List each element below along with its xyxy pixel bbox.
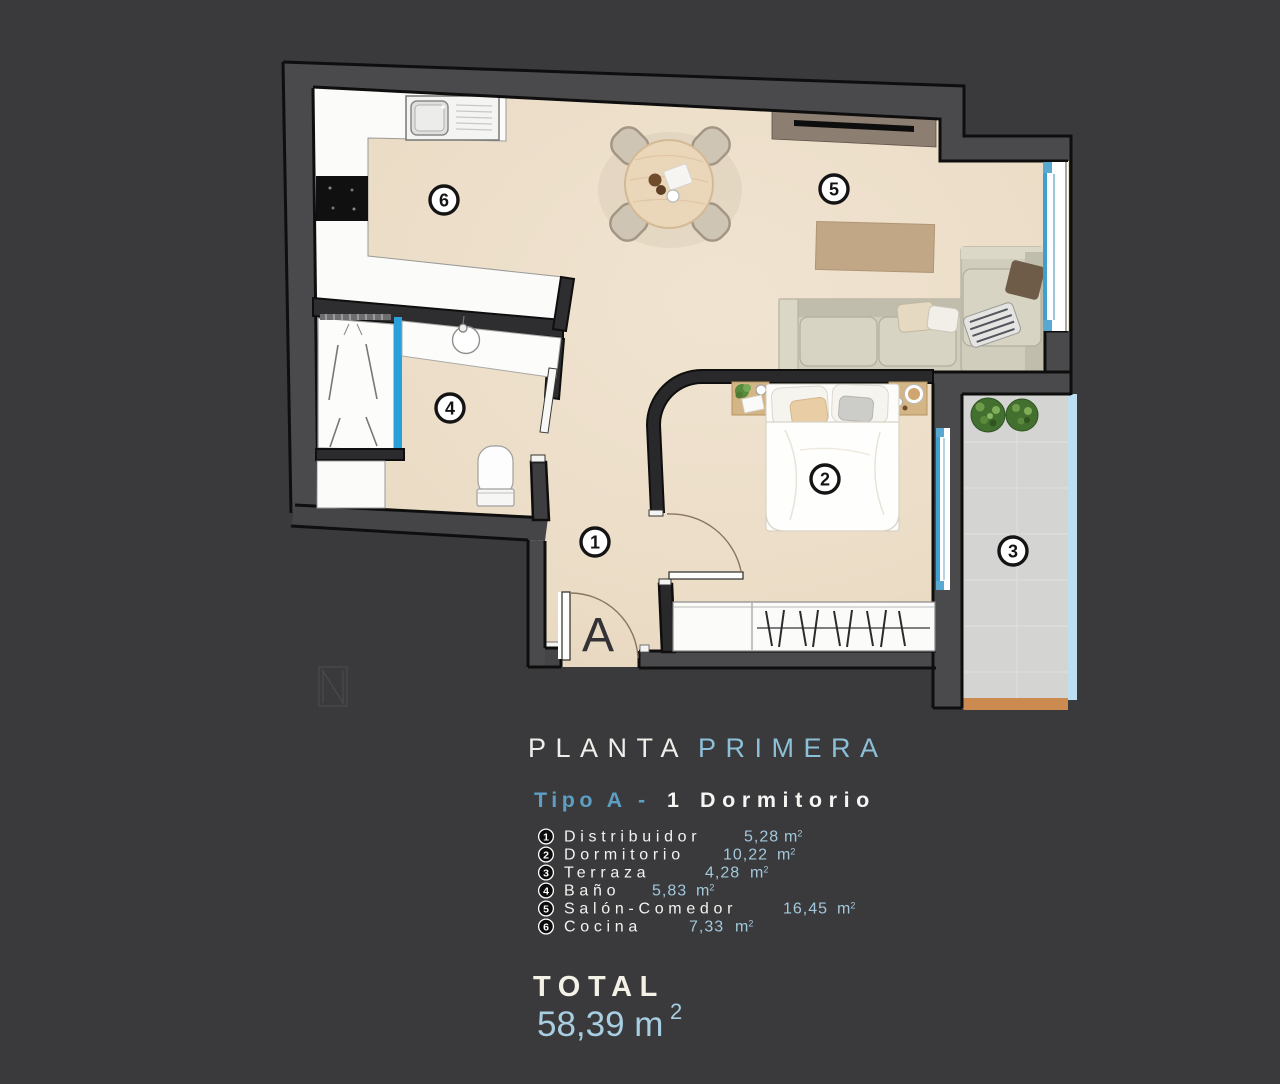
svg-text:A: A xyxy=(582,609,614,662)
svg-text:4: 4 xyxy=(543,886,549,898)
svg-text:-: - xyxy=(638,788,645,812)
svg-text:2: 2 xyxy=(820,470,830,490)
svg-text:Baño: Baño xyxy=(564,883,620,900)
svg-text:10,22: 10,22 xyxy=(723,847,768,864)
svg-text:2: 2 xyxy=(670,999,682,1024)
svg-text:5,83: 5,83 xyxy=(652,883,687,900)
svg-text:6: 6 xyxy=(543,922,549,934)
svg-text:1: 1 xyxy=(667,788,679,812)
svg-text:3: 3 xyxy=(543,868,549,880)
svg-text:Tipo A: Tipo A xyxy=(534,788,627,812)
svg-text:Distribuidor: Distribuidor xyxy=(564,829,701,846)
svg-text:6: 6 xyxy=(439,191,449,211)
svg-text:16,45: 16,45 xyxy=(783,901,828,918)
svg-text:4,28: 4,28 xyxy=(705,865,740,882)
svg-text:5,28: 5,28 xyxy=(744,829,779,846)
svg-text:4: 4 xyxy=(445,399,455,419)
svg-text:2: 2 xyxy=(543,850,549,862)
svg-text:PRIMERA: PRIMERA xyxy=(698,733,888,763)
svg-text:1: 1 xyxy=(543,832,549,844)
svg-text:TOTAL: TOTAL xyxy=(533,971,665,1003)
svg-text:5: 5 xyxy=(829,180,839,200)
svg-text:Dormitorio: Dormitorio xyxy=(700,788,876,812)
svg-text:Cocina: Cocina xyxy=(564,919,642,936)
svg-text:Terraza: Terraza xyxy=(564,865,650,882)
svg-text:PLANTA: PLANTA xyxy=(528,733,688,763)
svg-text:1: 1 xyxy=(590,533,600,553)
svg-text:3: 3 xyxy=(1008,542,1018,562)
svg-text:Salón-Comedor: Salón-Comedor xyxy=(564,901,737,918)
svg-text:58,39 m: 58,39 m xyxy=(537,1005,663,1044)
svg-text:Dormitorio: Dormitorio xyxy=(564,847,685,864)
svg-text:7,33: 7,33 xyxy=(689,919,724,936)
svg-text:5: 5 xyxy=(543,904,549,916)
